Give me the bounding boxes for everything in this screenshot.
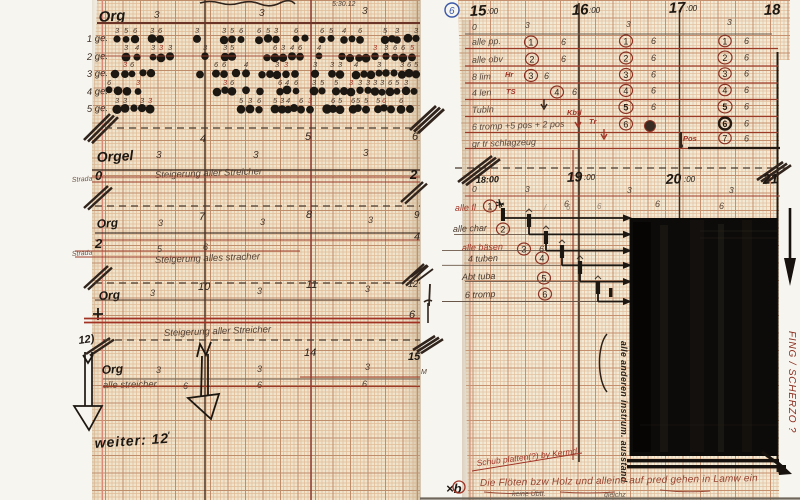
svg-text:6: 6 xyxy=(412,131,419,143)
svg-text:4: 4 xyxy=(290,43,294,52)
svg-text:14: 14 xyxy=(304,347,316,359)
svg-text:4 len: 4 len xyxy=(472,87,492,98)
svg-text:4: 4 xyxy=(286,96,290,105)
svg-text:3: 3 xyxy=(158,218,163,228)
svg-text:19: 19 xyxy=(566,168,583,185)
svg-text::00: :00 xyxy=(584,173,596,182)
svg-text:3: 3 xyxy=(521,244,526,254)
svg-text:keine Übtr.: keine Übtr. xyxy=(512,490,546,498)
svg-text:4 ge.: 4 ge. xyxy=(87,86,109,98)
svg-text:7: 7 xyxy=(722,133,727,143)
svg-text:3: 3 xyxy=(150,288,155,298)
svg-text:6: 6 xyxy=(203,242,208,252)
svg-text:alle bäsen: alle bäsen xyxy=(462,242,503,253)
svg-text:6: 6 xyxy=(362,379,367,389)
svg-text:8 lim: 8 lim xyxy=(472,71,492,82)
svg-text:3: 3 xyxy=(363,148,369,159)
svg-text:2: 2 xyxy=(529,54,534,64)
svg-text:10: 10 xyxy=(198,281,211,293)
svg-text:16: 16 xyxy=(571,1,589,19)
svg-text:6: 6 xyxy=(449,6,455,17)
svg-text:Kbtl: Kbtl xyxy=(567,108,582,117)
svg-text:3: 3 xyxy=(260,217,265,227)
svg-text:6: 6 xyxy=(651,53,656,63)
svg-text:FING / SCHERZO ?: FING / SCHERZO ? xyxy=(786,331,797,433)
svg-text:3: 3 xyxy=(623,70,628,80)
svg-text:0: 0 xyxy=(472,22,477,32)
svg-text:6: 6 xyxy=(655,199,660,209)
svg-text:17: 17 xyxy=(668,0,686,17)
svg-text:4: 4 xyxy=(354,60,358,69)
svg-text:4: 4 xyxy=(722,85,727,95)
svg-text:6: 6 xyxy=(544,71,549,81)
svg-text:alle anderen instrum. ausstand: alle anderen instrum. ausstand xyxy=(619,341,629,483)
svg-text:1: 1 xyxy=(722,36,727,46)
svg-text:3: 3 xyxy=(259,8,265,19)
svg-text:0: 0 xyxy=(95,168,103,183)
svg-text:6: 6 xyxy=(651,36,656,46)
svg-text:3: 3 xyxy=(626,19,631,29)
svg-text:3: 3 xyxy=(525,184,530,194)
svg-text:4: 4 xyxy=(539,253,544,263)
svg-text:3: 3 xyxy=(257,286,262,296)
svg-text:1: 1 xyxy=(528,37,533,47)
svg-text:6: 6 xyxy=(744,69,749,79)
svg-text:6: 6 xyxy=(651,70,656,80)
svg-text:alle pp.: alle pp. xyxy=(472,36,501,47)
svg-text:2: 2 xyxy=(722,53,727,63)
svg-text:Orgel: Orgel xyxy=(96,147,134,165)
svg-text:6: 6 xyxy=(744,85,749,95)
svg-text:4 tuben: 4 tuben xyxy=(468,253,498,264)
svg-text:8: 8 xyxy=(306,209,313,221)
svg-text::00: :00 xyxy=(686,4,698,13)
svg-text:4: 4 xyxy=(317,43,321,52)
svg-text:5: 5 xyxy=(305,131,312,143)
svg-text:Tr: Tr xyxy=(589,117,597,126)
svg-text:21: 21 xyxy=(761,170,779,187)
svg-text:1: 1 xyxy=(487,201,492,211)
svg-text:4: 4 xyxy=(623,86,628,96)
svg-text::00: :00 xyxy=(589,6,601,15)
svg-text:3: 3 xyxy=(156,365,161,375)
svg-text:4: 4 xyxy=(135,43,139,52)
svg-text:Hr: Hr xyxy=(505,70,514,79)
svg-text:3: 3 xyxy=(154,10,160,21)
svg-text:3 ge.: 3 ge. xyxy=(87,68,109,80)
svg-text:4: 4 xyxy=(200,133,206,145)
svg-text:1 ge.: 1 ge. xyxy=(87,33,109,45)
svg-text:Pos: Pos xyxy=(683,134,697,143)
svg-text:3: 3 xyxy=(729,185,734,195)
svg-text:5:30.12: 5:30.12 xyxy=(332,1,355,8)
svg-text:18: 18 xyxy=(763,1,781,19)
svg-text:3: 3 xyxy=(722,69,727,79)
svg-text:3: 3 xyxy=(525,20,530,30)
svg-text:2 ge.: 2 ge. xyxy=(86,51,109,63)
svg-text:12): 12) xyxy=(78,333,96,347)
svg-text:6: 6 xyxy=(572,87,577,97)
svg-text:6: 6 xyxy=(744,134,749,144)
svg-text:20: 20 xyxy=(664,170,682,187)
svg-text:alle obv: alle obv xyxy=(472,54,504,65)
svg-text:6: 6 xyxy=(651,102,656,112)
svg-text:15: 15 xyxy=(469,2,487,20)
svg-text:2: 2 xyxy=(409,167,418,182)
svg-text:9: 9 xyxy=(414,210,420,221)
svg-text:0: 0 xyxy=(472,184,477,194)
svg-text:6: 6 xyxy=(542,289,547,299)
svg-text:6: 6 xyxy=(651,86,656,96)
svg-text:7: 7 xyxy=(199,211,206,223)
svg-text:6: 6 xyxy=(719,201,724,211)
svg-text:5: 5 xyxy=(623,102,628,112)
svg-text:2: 2 xyxy=(500,224,505,234)
svg-text:Strada: Strada xyxy=(72,176,93,184)
svg-text:6: 6 xyxy=(722,119,727,129)
svg-text:12: 12 xyxy=(408,279,418,289)
svg-text:TS: TS xyxy=(506,87,516,96)
svg-text:18:00: 18:00 xyxy=(476,174,499,185)
svg-text:Org: Org xyxy=(98,287,121,303)
svg-text::00: :00 xyxy=(684,175,696,184)
svg-text:Org: Org xyxy=(101,361,124,377)
svg-text:M: M xyxy=(421,369,427,376)
svg-text:3: 3 xyxy=(528,71,533,81)
svg-text:6: 6 xyxy=(623,119,628,129)
svg-text:6: 6 xyxy=(744,36,749,46)
svg-text:6: 6 xyxy=(561,54,566,64)
svg-text:alle streicher: alle streicher xyxy=(103,379,158,391)
svg-text:2: 2 xyxy=(623,53,628,63)
svg-text:6 tromp: 6 tromp xyxy=(465,289,496,300)
svg-text:1: 1 xyxy=(623,36,628,46)
svg-text:15: 15 xyxy=(408,351,421,363)
svg-text:6: 6 xyxy=(539,244,544,254)
svg-text:Tubln: Tubln xyxy=(472,104,494,115)
svg-text:5 ge.: 5 ge. xyxy=(87,103,109,115)
svg-text:6: 6 xyxy=(744,119,749,129)
svg-text:6: 6 xyxy=(566,203,571,212)
svg-text:3: 3 xyxy=(365,362,370,372)
svg-text:3: 3 xyxy=(257,364,262,374)
svg-text:3: 3 xyxy=(362,6,368,17)
svg-text:4: 4 xyxy=(342,26,346,35)
svg-text:Org: Org xyxy=(96,215,119,231)
svg-text:6: 6 xyxy=(744,53,749,63)
svg-text:11: 11 xyxy=(306,279,317,291)
svg-text:6: 6 xyxy=(597,202,602,211)
svg-text:Abt tuba: Abt tuba xyxy=(461,271,496,282)
svg-text:6: 6 xyxy=(561,37,566,47)
svg-text::00: :00 xyxy=(487,7,499,16)
svg-text:3: 3 xyxy=(365,284,370,294)
svg-text:4: 4 xyxy=(554,87,559,97)
svg-text:6: 6 xyxy=(744,102,749,112)
svg-text:4: 4 xyxy=(244,60,248,69)
svg-text:5: 5 xyxy=(722,102,727,112)
svg-text:3: 3 xyxy=(253,150,259,161)
svg-text:3: 3 xyxy=(727,17,732,27)
svg-text:3: 3 xyxy=(156,150,162,161)
svg-text:3: 3 xyxy=(627,185,632,195)
svg-text:6: 6 xyxy=(257,380,262,390)
svg-text:alle fl: alle fl xyxy=(455,202,477,213)
svg-text:4: 4 xyxy=(414,231,420,243)
svg-text:alle char: alle char xyxy=(453,223,488,234)
svg-text:2: 2 xyxy=(94,236,103,251)
svg-text:3: 3 xyxy=(368,215,373,225)
